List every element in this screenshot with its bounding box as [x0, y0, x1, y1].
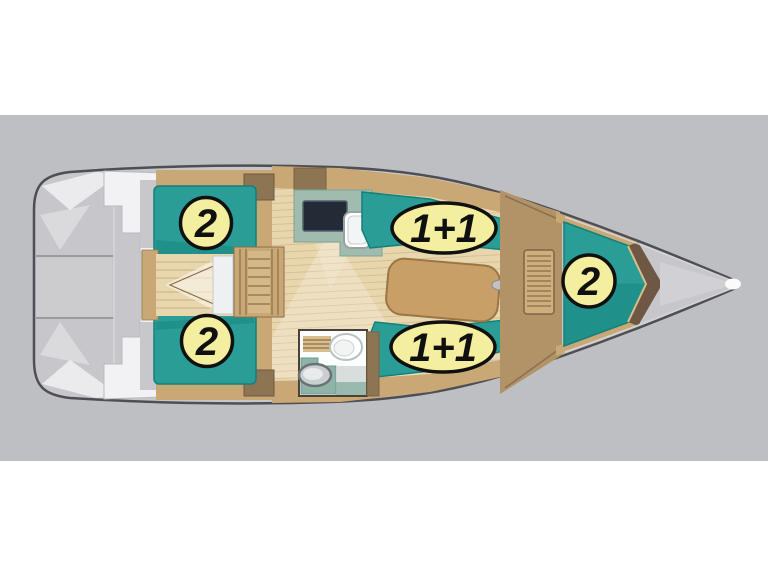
aft-starboard-capacity-text: 2 [195, 320, 218, 364]
head-bathroom [299, 330, 379, 396]
saloon-table [385, 257, 501, 323]
head-door [367, 332, 379, 396]
companionway-step [213, 256, 233, 314]
fore-cabin-louver-door [524, 250, 554, 314]
fore-cabin-capacity-text: 2 [577, 260, 600, 304]
stove-icon [303, 201, 347, 231]
boat-floor-plan-page: 2 2 1+1 1+1 2 [0, 0, 768, 576]
saloon-port-capacity-text: 1+1 [410, 207, 478, 251]
boat-floor-plan-canvas: 2 2 1+1 1+1 2 [0, 0, 768, 576]
aft-port-capacity-text: 2 [194, 202, 217, 246]
companionway [142, 247, 284, 320]
bow-tip-highlight [725, 279, 741, 290]
saloon-starboard-capacity-text: 1+1 [409, 326, 477, 370]
